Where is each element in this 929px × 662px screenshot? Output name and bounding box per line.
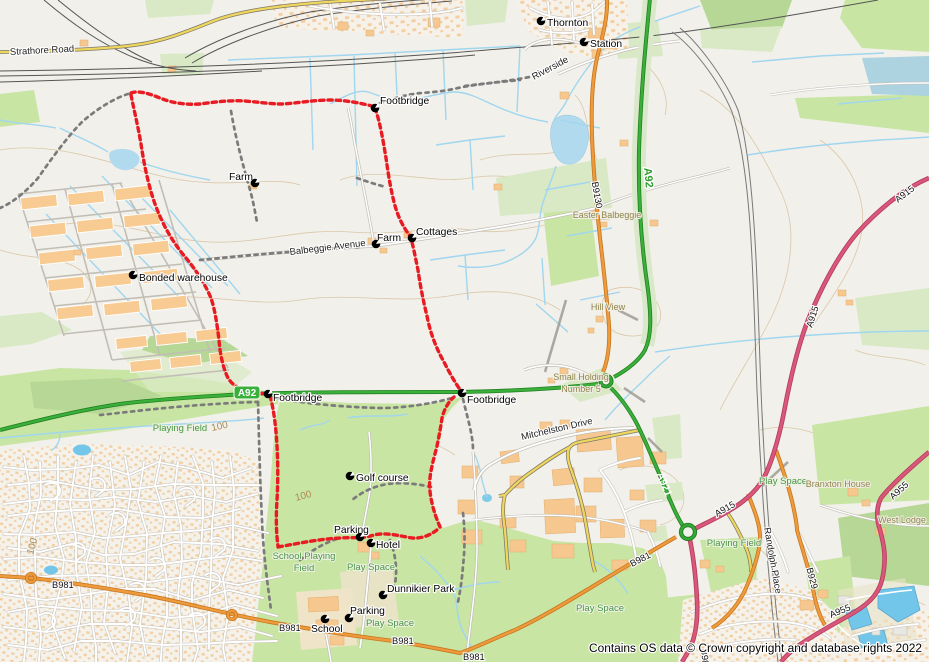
svg-text:Playing Field: Playing Field [153, 423, 207, 434]
svg-text:B981: B981 [392, 636, 414, 646]
svg-text:Thornton: Thornton [547, 18, 588, 29]
svg-text:Contains OS data © Crown copyr: Contains OS data © Crown copyright and d… [589, 641, 922, 655]
svg-text:Play Space: Play Space [576, 603, 624, 614]
svg-text:West Lodge: West Lodge [878, 515, 926, 525]
svg-text:Branxton House: Branxton House [806, 479, 871, 489]
svg-text:School: School [311, 624, 342, 635]
svg-text:Footbridge: Footbridge [273, 393, 323, 404]
svg-text:Field: Field [294, 563, 315, 574]
svg-text:Small Holding: Small Holding [553, 372, 609, 382]
svg-text:Dunnikier Park: Dunnikier Park [387, 584, 455, 595]
svg-text:B981: B981 [52, 580, 74, 590]
svg-text:Hotel: Hotel [376, 540, 400, 551]
svg-text:Hill View: Hill View [591, 302, 626, 312]
svg-text:B981: B981 [463, 652, 485, 662]
svg-text:Parking: Parking [350, 606, 385, 617]
svg-text:School Playing: School Playing [273, 551, 336, 562]
svg-text:Easter Balbeggie: Easter Balbeggie [573, 210, 642, 220]
svg-text:Bonded warehouse: Bonded warehouse [139, 273, 228, 284]
svg-text:Farm: Farm [377, 233, 401, 244]
svg-text:Play Space: Play Space [759, 476, 807, 487]
svg-text:Footbridge: Footbridge [467, 395, 517, 406]
svg-text:Playing Field: Playing Field [707, 538, 761, 549]
svg-text:Farm: Farm [229, 172, 253, 183]
svg-text:Play Space: Play Space [347, 562, 395, 573]
svg-text:A92: A92 [238, 388, 257, 399]
svg-text:Parking: Parking [334, 525, 369, 536]
svg-text:Cottages: Cottages [416, 227, 457, 238]
svg-text:Play Space: Play Space [366, 618, 414, 629]
svg-text:Number 5: Number 5 [561, 384, 601, 394]
svg-text:Station: Station [590, 39, 622, 50]
svg-text:B981: B981 [279, 623, 301, 633]
svg-text:Footbridge: Footbridge [380, 96, 430, 107]
svg-text:A92: A92 [641, 167, 655, 188]
svg-text:Golf course: Golf course [356, 473, 409, 484]
